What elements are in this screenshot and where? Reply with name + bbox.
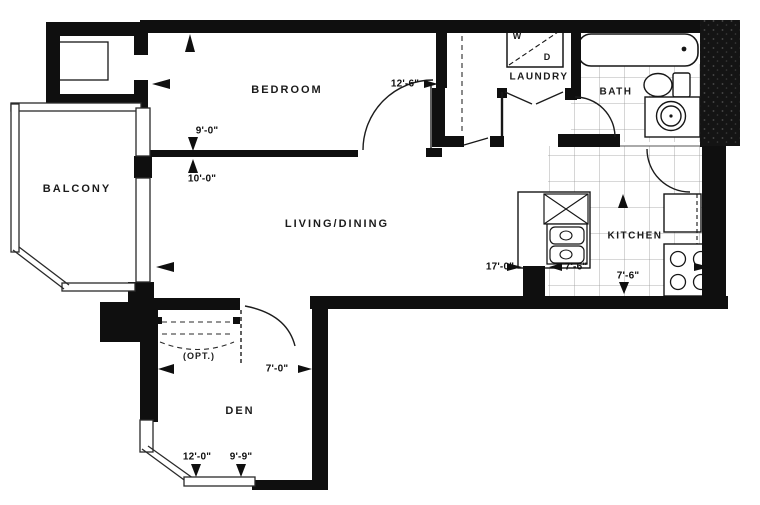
dim-den-length: 12'-0"	[183, 452, 211, 463]
dim-den-window: 9'-9"	[230, 452, 253, 463]
floor-plan-canvas	[0, 0, 760, 505]
wall-den-right	[312, 300, 328, 490]
wall-top	[140, 20, 740, 33]
wall-demising-textured	[700, 20, 740, 146]
den-door-arc	[245, 306, 295, 346]
wall-right	[702, 146, 726, 309]
wall-bedroom-divider	[140, 150, 358, 157]
den-optional-label: (OPT.)	[183, 351, 215, 361]
dim-living-width: 10'-0"	[188, 174, 216, 185]
floor-plan: BALCONY BEDROOM LAUNDRY W D BATH KITCHEN…	[0, 0, 760, 505]
room-label-bath: BATH	[599, 87, 632, 98]
room-label-bedroom: BEDROOM	[251, 84, 322, 96]
dimension-arrow	[298, 365, 312, 373]
wall-bottom	[310, 296, 728, 309]
dimension-arrow	[185, 34, 195, 52]
bedroom-door-arc	[363, 80, 433, 150]
bathtub	[578, 34, 698, 66]
balcony-rail-top	[11, 103, 141, 111]
closet-door-leaf	[464, 138, 488, 145]
bedroom-closet-cabinet	[56, 42, 108, 80]
room-label-balcony: BALCONY	[43, 183, 111, 195]
den-window-left	[140, 420, 153, 452]
toilet-icon	[644, 73, 690, 97]
dim-kitchen-counter: 7'-6"	[565, 262, 588, 273]
dimension-arrow	[152, 79, 170, 89]
dimension-arrow	[188, 159, 198, 173]
room-label-kitchen: KITCHEN	[608, 231, 663, 242]
dimension-arrow	[156, 262, 174, 272]
dimension-arrow	[191, 464, 201, 477]
dim-kitchen-depth: 7'-6"	[617, 271, 640, 282]
laundry-bifold-doors	[505, 92, 563, 104]
dimension-arrow	[188, 137, 198, 151]
balcony-slider-door	[136, 178, 150, 282]
wall-den-left	[140, 342, 158, 422]
dim-den-width: 7'-0"	[266, 364, 289, 375]
kitchen-sink-icon	[547, 224, 587, 264]
dryer-label: D	[544, 52, 551, 62]
den-optional-closet	[160, 322, 234, 350]
room-label-living-dining: LIVING/DINING	[285, 218, 389, 230]
dim-living-length: 17'-0"	[486, 262, 514, 273]
balcony-slider-window	[136, 108, 150, 156]
wall-bath-left	[571, 20, 581, 99]
dim-bedroom-width: 9'-0"	[196, 126, 219, 137]
bathroom-sink-vanity	[645, 97, 700, 137]
room-label-laundry: LAUNDRY	[509, 72, 568, 83]
dimension-arrow	[158, 364, 174, 374]
wall-den-top	[148, 298, 240, 310]
dimension-arrow	[236, 464, 246, 477]
balcony-rail-bottom	[62, 283, 135, 291]
tub-drain-icon	[682, 47, 687, 52]
room-label-den: DEN	[225, 405, 254, 417]
balcony-rail-left	[11, 104, 19, 252]
kitchen-counter	[518, 192, 590, 268]
den-window-bottom	[184, 477, 255, 486]
dim-bedroom-length: 12'-6"	[391, 79, 419, 90]
balcony-rail-angle	[13, 247, 69, 289]
washer-label: W	[513, 31, 522, 41]
